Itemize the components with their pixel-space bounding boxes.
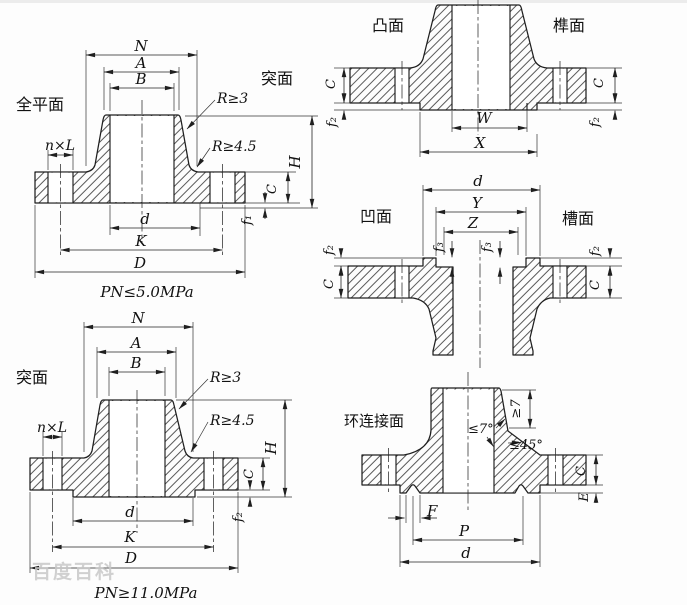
dim-label-f3: f₃ bbox=[480, 242, 495, 253]
dim-W: W bbox=[452, 109, 527, 132]
dim-d: d bbox=[73, 498, 193, 526]
dim-f3-right: f₃ bbox=[480, 241, 500, 284]
dim-label-d: d bbox=[461, 544, 471, 562]
watermark-text: 百度百科 bbox=[32, 560, 116, 583]
face-type-label-female: 凹面 bbox=[360, 207, 392, 226]
bore bbox=[443, 388, 494, 493]
dim-bolt-holes: n×L bbox=[45, 138, 75, 170]
face-type-label-raised: 突面 bbox=[261, 69, 293, 88]
dim-label-K: K bbox=[123, 528, 136, 546]
dim-label-f2: f₂ bbox=[588, 117, 603, 128]
dim-d: d bbox=[110, 205, 200, 235]
dim-label-C: C bbox=[324, 79, 339, 89]
dim-label-D: D bbox=[133, 254, 146, 272]
bolt-hole-left bbox=[43, 451, 62, 552]
dim-B: B bbox=[109, 354, 165, 396]
dim-bolt-holes: n×L bbox=[37, 420, 67, 456]
dim-label-f2: f₂ bbox=[325, 117, 340, 128]
dim-label-E: E bbox=[577, 492, 592, 503]
diagram-flat-face-flange: N A B n×L R≥3 R≥4.5 bbox=[16, 37, 318, 301]
dim-K: K bbox=[53, 528, 214, 547]
dim-C-left: C bbox=[324, 68, 350, 103]
dim-d: d bbox=[400, 495, 540, 567]
dim-label-d: d bbox=[140, 210, 150, 228]
radius-label-r3: R≥3 bbox=[216, 91, 248, 107]
diagram-female-groove-flange: d Y Z f₃ f₃ f₂ bbox=[322, 172, 622, 368]
dim-label-f2: f₂ bbox=[322, 245, 337, 256]
bolt-hole-left bbox=[48, 164, 73, 257]
dim-label-B: B bbox=[134, 70, 146, 88]
flange-outline bbox=[348, 258, 586, 355]
pressure-rating-label: PN≤5.0MPa bbox=[99, 283, 193, 301]
face-type-label-groove: 槽面 bbox=[562, 209, 594, 228]
radius-note-r3: R≥3 bbox=[187, 91, 248, 129]
face-lines bbox=[200, 203, 318, 236]
dim-label-W: W bbox=[476, 109, 493, 127]
radius-label-r45: R≥4.5 bbox=[209, 413, 255, 429]
radius-note-r45: R≥4.5 bbox=[197, 139, 257, 167]
angle-note-le45: ≤45° bbox=[508, 438, 543, 453]
dim-label-H: H bbox=[262, 441, 280, 456]
radius-note-r45: R≥4.5 bbox=[191, 413, 255, 452]
dim-C-left: C bbox=[322, 266, 348, 298]
angle-label-le7: ≤7° bbox=[468, 422, 494, 437]
dim-label-f2: f₂ bbox=[231, 512, 246, 523]
dim-label-d: d bbox=[473, 172, 483, 190]
dim-C: C bbox=[245, 172, 296, 203]
dim-C-right: C bbox=[586, 266, 622, 298]
pressure-rating-label: PN≥11.0MPa bbox=[94, 584, 198, 602]
dim-label-N: N bbox=[133, 37, 148, 55]
dim-label-f3: f₃ bbox=[432, 242, 447, 253]
diagram-male-tongue-flange: C f₂ C f₂ W X 凸面 榫面 bbox=[324, 0, 622, 157]
bore bbox=[452, 5, 510, 110]
dim-C: C bbox=[238, 458, 270, 490]
dim-label-C: C bbox=[265, 184, 280, 194]
dim-label-ge7: ≥7 bbox=[509, 399, 524, 419]
dim-label-C: C bbox=[574, 466, 589, 476]
radius-label-r45: R≥4.5 bbox=[211, 139, 257, 155]
drawing-canvas: N A B n×L R≥3 R≥4.5 bbox=[0, 0, 687, 605]
dim-label-nxL: n×L bbox=[45, 138, 75, 154]
dim-label-nxL: n×L bbox=[37, 420, 67, 436]
dim-label-C: C bbox=[322, 279, 337, 289]
scan-edge bbox=[0, 0, 687, 3]
diagram-raised-face-flange: N A B n×L R≥3 R≥4.5 H bbox=[16, 309, 292, 602]
dim-label-P: P bbox=[458, 522, 470, 540]
radius-label-r3: R≥3 bbox=[209, 370, 241, 386]
face-type-label-flat: 全平面 bbox=[16, 95, 64, 114]
diagram-ring-joint-flange: ≥7 ≤7° ≤45° C E F P bbox=[344, 372, 603, 567]
face-type-label-tongue: 榫面 bbox=[553, 16, 585, 35]
dim-E: E bbox=[540, 492, 603, 503]
dim-label-d: d bbox=[125, 503, 135, 521]
dim-K: K bbox=[61, 232, 223, 250]
dim-label-F: F bbox=[426, 502, 438, 520]
dim-label-K: K bbox=[134, 232, 147, 250]
dim-label-H: H bbox=[286, 155, 304, 170]
dim-label-D: D bbox=[124, 549, 137, 567]
dim-label-B: B bbox=[129, 354, 141, 372]
dim-label-C: C bbox=[592, 78, 607, 88]
dim-label-X: X bbox=[474, 134, 487, 152]
dim-C-right: C bbox=[586, 68, 622, 103]
dim-label-C: C bbox=[588, 280, 603, 290]
face-type-label-ring-joint: 环连接面 bbox=[344, 412, 404, 430]
dim-label-A: A bbox=[129, 334, 142, 352]
engineering-drawing-flange-faces: N A B n×L R≥3 R≥4.5 bbox=[0, 0, 687, 605]
radius-note-r3: R≥3 bbox=[179, 370, 241, 409]
angle-label-le45: ≤45° bbox=[509, 438, 543, 453]
dim-label-Z: Z bbox=[467, 214, 479, 232]
dim-label-f2: f₂ bbox=[588, 246, 603, 257]
dim-label-Y: Y bbox=[472, 194, 484, 212]
dim-label-N: N bbox=[130, 309, 145, 327]
dim-label-C: C bbox=[242, 469, 257, 479]
face-type-label-male: 凸面 bbox=[372, 16, 404, 35]
bolt-hole-right bbox=[210, 164, 235, 257]
face-type-label-raised: 突面 bbox=[16, 368, 48, 387]
dim-label-f1: f₁ bbox=[240, 215, 255, 226]
bolt-hole-right bbox=[204, 451, 223, 552]
